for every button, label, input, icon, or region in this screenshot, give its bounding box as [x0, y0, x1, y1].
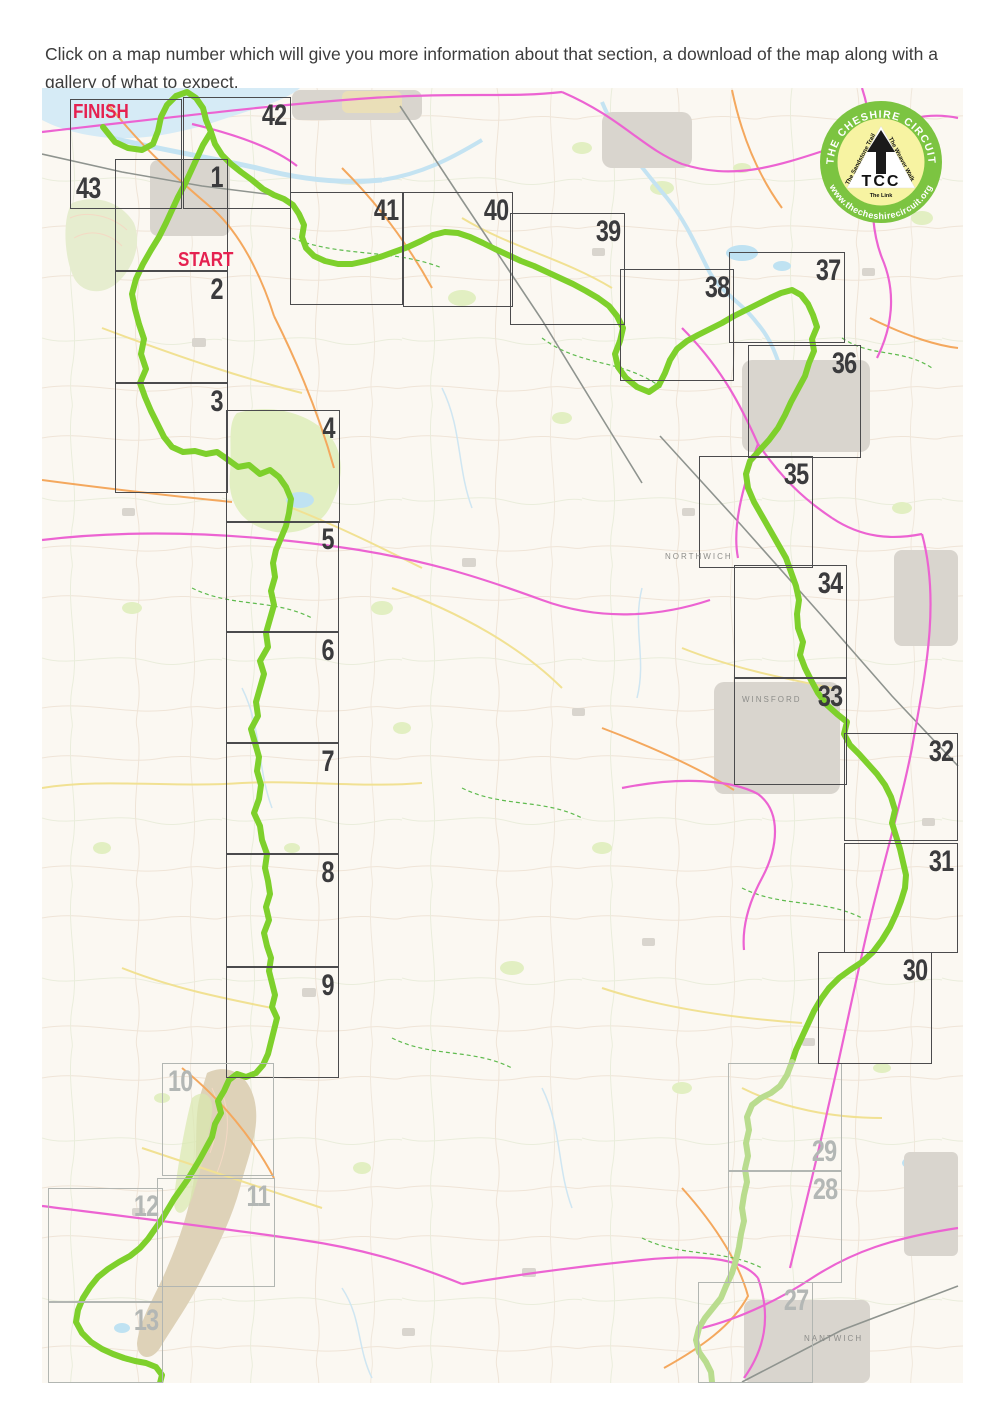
map-section-box-11[interactable]: 11 [157, 1178, 275, 1287]
map-section-number-28[interactable]: 28 [813, 1175, 837, 1205]
map-section-number-34[interactable]: 34 [818, 569, 842, 599]
map-section-number-7[interactable]: 7 [322, 747, 334, 777]
map-section-number-32[interactable]: 32 [929, 737, 953, 767]
map-section-number-8[interactable]: 8 [322, 858, 334, 888]
start-label: START [178, 250, 233, 270]
map-section-number-29[interactable]: 29 [812, 1137, 836, 1167]
map-section-number-41[interactable]: 41 [374, 196, 398, 226]
map-section-box-37[interactable]: 37 [729, 252, 845, 343]
map-section-box-32[interactable]: 32 [844, 733, 958, 841]
map-section-number-3[interactable]: 3 [211, 387, 223, 417]
map-section-box-13[interactable]: 13 [48, 1302, 163, 1383]
map-section-number-33[interactable]: 33 [818, 682, 842, 712]
map-section-box-34[interactable]: 34 [734, 565, 847, 678]
tcc-logo[interactable]: THE CHESHIRE CIRCUIT www.thecheshirecirc… [819, 100, 943, 224]
map-section-box-4[interactable]: 4 [226, 410, 340, 523]
map-section-number-12[interactable]: 12 [134, 1192, 158, 1222]
map-section-box-8[interactable]: 8 [226, 854, 339, 967]
map-section-number-6[interactable]: 6 [322, 636, 334, 666]
map-section-number-5[interactable]: 5 [322, 525, 334, 555]
map-section-number-42[interactable]: 42 [262, 101, 286, 131]
map-section-box-31[interactable]: 31 [844, 843, 958, 953]
map-section-number-36[interactable]: 36 [832, 349, 856, 379]
place-label-nantwich: NANTWICH [804, 1334, 863, 1343]
finish-label: FINISH [73, 102, 129, 122]
map-section-box-29[interactable]: 29 [728, 1063, 842, 1171]
map-section-number-39[interactable]: 39 [596, 217, 620, 247]
map-section-number-37[interactable]: 37 [816, 256, 840, 286]
map-section-number-35[interactable]: 35 [784, 460, 808, 490]
map-section-box-38[interactable]: 38 [620, 269, 734, 381]
map-section-box-28[interactable]: 28 [728, 1171, 842, 1283]
map-section-number-43[interactable]: 43 [76, 174, 100, 204]
place-label-winsford: WINSFORD [742, 695, 802, 704]
map-section-box-39[interactable]: 39 [510, 213, 625, 325]
map-sections: 1234567891011121327282930313233343536373… [42, 88, 963, 1383]
route-overview-map: 1234567891011121327282930313233343536373… [42, 88, 963, 1383]
map-section-box-41[interactable]: 41 [290, 192, 403, 305]
map-section-box-40[interactable]: 40 [403, 192, 513, 307]
map-section-number-11[interactable]: 11 [247, 1182, 270, 1212]
map-section-number-30[interactable]: 30 [903, 956, 927, 986]
map-section-number-4[interactable]: 4 [323, 414, 335, 444]
map-section-box-3[interactable]: 3 [115, 383, 228, 493]
map-section-number-9[interactable]: 9 [322, 971, 334, 1001]
map-section-number-2[interactable]: 2 [211, 275, 223, 305]
map-section-number-13[interactable]: 13 [134, 1306, 158, 1336]
logo-arrow-shaft [876, 150, 886, 174]
map-section-number-38[interactable]: 38 [705, 273, 729, 303]
map-section-number-27[interactable]: 27 [784, 1286, 808, 1316]
place-label-northwich: NORTHWICH [665, 552, 733, 561]
map-section-box-42[interactable]: 42 [183, 97, 291, 209]
map-section-box-30[interactable]: 30 [818, 952, 932, 1064]
map-section-number-40[interactable]: 40 [484, 196, 508, 226]
map-section-box-27[interactable]: 27 [698, 1282, 813, 1383]
map-section-number-10[interactable]: 10 [168, 1067, 192, 1097]
map-section-box-36[interactable]: 36 [748, 345, 861, 458]
map-section-box-6[interactable]: 6 [226, 632, 339, 743]
map-section-box-12[interactable]: 12 [48, 1188, 163, 1302]
map-section-box-7[interactable]: 7 [226, 743, 339, 854]
map-section-box-10[interactable]: 10 [162, 1063, 274, 1176]
map-section-box-9[interactable]: 9 [226, 967, 339, 1078]
map-section-number-31[interactable]: 31 [929, 847, 953, 877]
map-section-box-2[interactable]: 2 [115, 271, 228, 383]
logo-acronym: TCC [862, 173, 901, 190]
logo-the-link-label: The Link [870, 193, 894, 199]
map-section-box-5[interactable]: 5 [226, 521, 339, 632]
